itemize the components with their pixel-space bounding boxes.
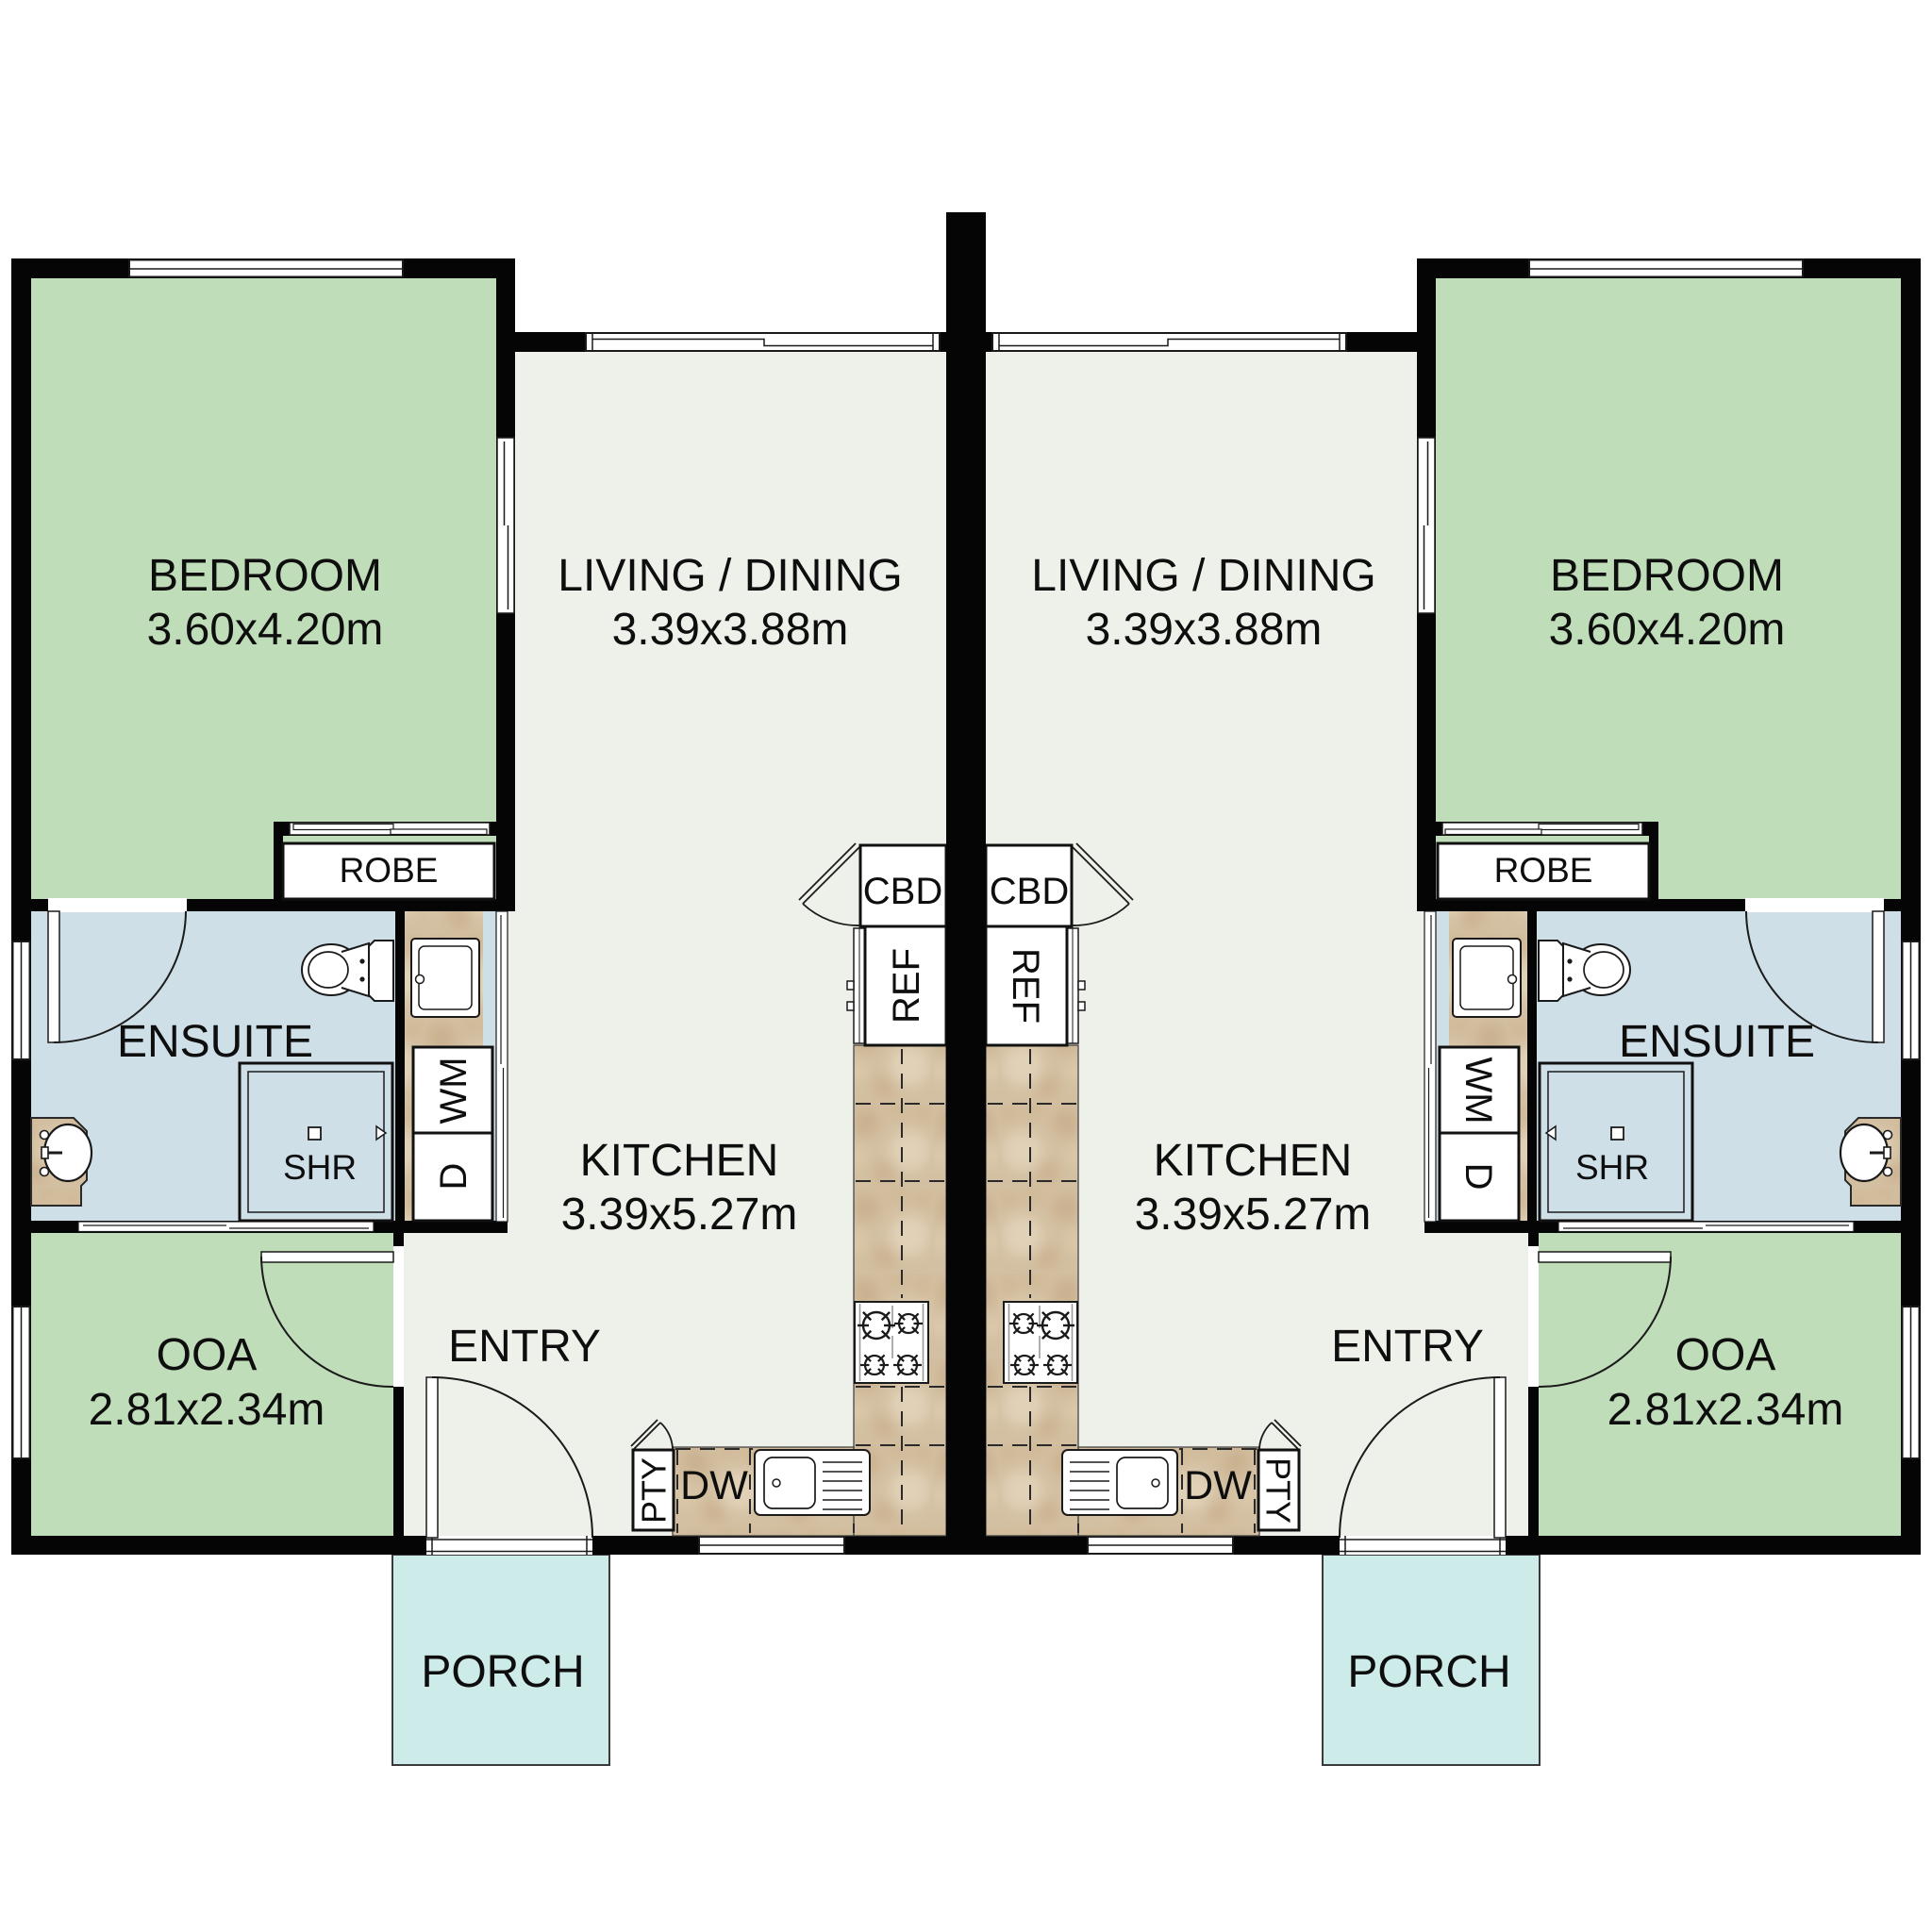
svg-text:WM: WM: [1457, 1057, 1499, 1124]
svg-text:ENTRY: ENTRY: [1331, 1322, 1484, 1372]
svg-text:3.60x4.20m: 3.60x4.20m: [1549, 605, 1786, 655]
svg-text:D: D: [433, 1163, 475, 1191]
svg-text:ROBE: ROBE: [340, 851, 439, 890]
svg-text:REF: REF: [1005, 948, 1046, 1024]
svg-text:CBD: CBD: [863, 871, 942, 912]
svg-text:3.39x3.88m: 3.39x3.88m: [612, 605, 849, 655]
svg-text:ENTRY: ENTRY: [448, 1322, 601, 1372]
svg-text:3.39x5.27m: 3.39x5.27m: [1135, 1190, 1372, 1240]
svg-text:OOA: OOA: [1675, 1330, 1776, 1380]
svg-text:CBD: CBD: [990, 871, 1069, 912]
svg-text:KITCHEN: KITCHEN: [580, 1136, 779, 1186]
svg-text:PORCH: PORCH: [421, 1647, 584, 1697]
svg-text:2.81x2.34m: 2.81x2.34m: [89, 1385, 325, 1435]
svg-text:DW: DW: [1184, 1463, 1252, 1508]
svg-text:3.60x4.20m: 3.60x4.20m: [147, 605, 384, 655]
svg-text:SHR: SHR: [283, 1148, 357, 1187]
svg-text:LIVING / DINING: LIVING / DINING: [558, 551, 902, 601]
svg-text:DW: DW: [680, 1463, 748, 1508]
svg-text:PTY: PTY: [1258, 1457, 1297, 1524]
svg-text:ENSUITE: ENSUITE: [1619, 1017, 1815, 1067]
svg-text:ROBE: ROBE: [1494, 851, 1593, 890]
svg-text:BEDROOM: BEDROOM: [1550, 551, 1784, 601]
svg-text:D: D: [1457, 1163, 1499, 1191]
svg-text:2.81x2.34m: 2.81x2.34m: [1607, 1385, 1844, 1435]
svg-text:ENSUITE: ENSUITE: [117, 1017, 313, 1067]
svg-text:PTY: PTY: [635, 1457, 674, 1524]
svg-text:PORCH: PORCH: [1347, 1647, 1510, 1697]
svg-text:3.39x5.27m: 3.39x5.27m: [561, 1190, 798, 1240]
svg-text:LIVING / DINING: LIVING / DINING: [1031, 551, 1375, 601]
svg-text:3.39x3.88m: 3.39x3.88m: [1086, 605, 1323, 655]
svg-text:WM: WM: [433, 1057, 475, 1124]
svg-text:OOA: OOA: [157, 1330, 258, 1380]
svg-text:BEDROOM: BEDROOM: [148, 551, 382, 601]
svg-text:KITCHEN: KITCHEN: [1154, 1136, 1353, 1186]
svg-text:REF: REF: [886, 948, 927, 1024]
svg-text:SHR: SHR: [1575, 1148, 1649, 1187]
